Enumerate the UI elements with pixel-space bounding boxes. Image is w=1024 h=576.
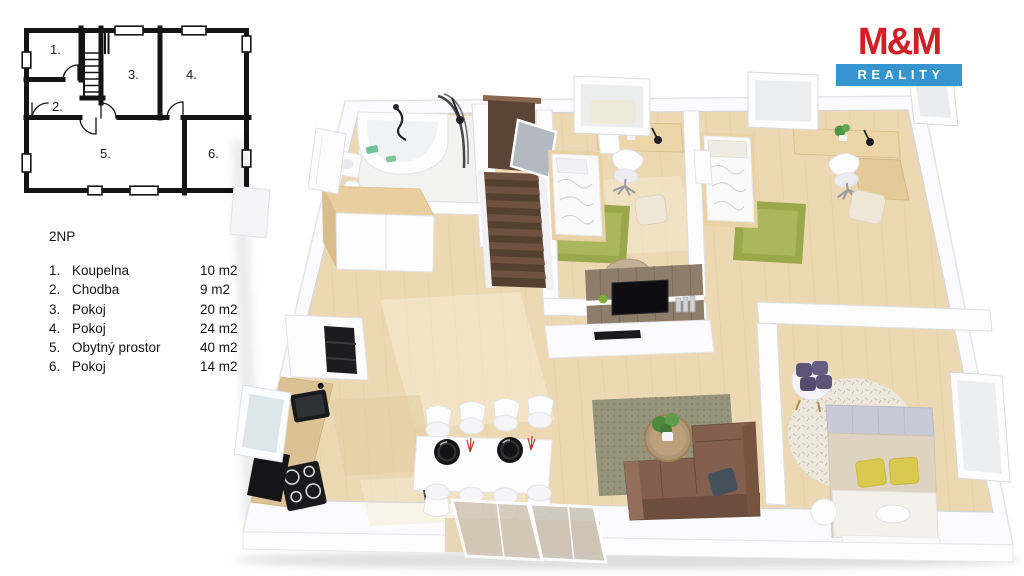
double-bed: [826, 405, 940, 548]
logo-mm-text: M&M: [836, 20, 962, 65]
floorplan-page: 1. 2. 3. 4. 5. 6.: [0, 0, 1024, 576]
legend-area: 9 m2: [200, 280, 264, 299]
room-number-2: 2.: [52, 99, 63, 114]
dining-chair: [424, 405, 452, 439]
decor-bottles: [676, 296, 695, 312]
legend-num: 4.: [49, 319, 72, 338]
logo-reality-bar: REALITY: [836, 64, 962, 86]
legend-row: 3. Pokoj 20 m2: [49, 300, 264, 319]
legend-num: 6.: [49, 357, 72, 376]
legend-label: Pokoj: [72, 319, 200, 338]
schematic-2d-floorplan: 1. 2. 3. 4. 5. 6.: [22, 26, 251, 195]
legend-label: Pokoj: [72, 300, 200, 319]
legend-num: 1.: [49, 261, 72, 280]
decor-apple: [599, 295, 608, 304]
black-bowl: [497, 437, 523, 463]
dining-chair: [423, 483, 451, 517]
open-kitchen-window: [234, 385, 291, 462]
legend-label: Obytný prostor: [72, 338, 200, 357]
room-number-3: 3.: [128, 67, 139, 82]
legend-num: 3.: [49, 300, 72, 319]
legend-area: 20 m2: [200, 300, 264, 319]
legend-row: 4. Pokoj 24 m2: [49, 319, 264, 338]
legend-area: 24 m2: [200, 319, 264, 338]
window-bay: [748, 72, 818, 130]
room-number-4: 4.: [186, 67, 197, 82]
legend-num: 2.: [49, 280, 72, 299]
legend-row: 1. Koupelna 10 m2: [49, 261, 264, 280]
legend-num: 5.: [49, 338, 72, 357]
built-in-oven: [324, 326, 357, 374]
legend-area: 40 m2: [200, 338, 264, 357]
yellow-pillow: [889, 457, 919, 485]
render-3d-floorplan: [230, 68, 1023, 569]
tv: [612, 280, 668, 315]
room-number-5: 5.: [100, 146, 111, 161]
legend-row: 5. Obytný prostor 40 m2: [49, 338, 264, 357]
window-bay: [574, 76, 650, 136]
legend-label: Chodba: [72, 280, 200, 299]
pouf-room4: [847, 189, 886, 225]
legend-title: 2NP: [49, 229, 264, 244]
legend-row: 2. Chodba 9 m2: [49, 280, 264, 299]
hall-wardrobe: [322, 186, 434, 272]
tv-lowboard: [545, 320, 714, 358]
dining-chair: [526, 395, 554, 429]
open-patio-doors: [452, 500, 606, 562]
room-number-6: 6.: [208, 146, 219, 161]
legend-label: Koupelna: [72, 261, 200, 280]
dresser-room4: [694, 150, 712, 184]
round-pillow: [876, 505, 910, 523]
legend-row: 6. Pokoj 14 m2: [49, 357, 264, 376]
side-table: [811, 499, 837, 525]
mm-reality-logo: M&M REALITY: [836, 20, 962, 86]
legend-label: Pokoj: [72, 357, 200, 376]
legend: 2NP 1. Koupelna 10 m2 2. Chodba 9 m2 3. …: [49, 229, 264, 377]
pouf-room3: [634, 194, 668, 226]
window-room6: [950, 372, 1010, 482]
dining-chair: [458, 401, 486, 435]
black-bowl: [434, 439, 460, 465]
dining-chair: [492, 398, 520, 432]
room-number-1: 1.: [50, 42, 61, 57]
legend-area: 10 m2: [200, 261, 264, 280]
yellow-pillow: [855, 458, 886, 488]
legend-area: 14 m2: [200, 357, 264, 376]
